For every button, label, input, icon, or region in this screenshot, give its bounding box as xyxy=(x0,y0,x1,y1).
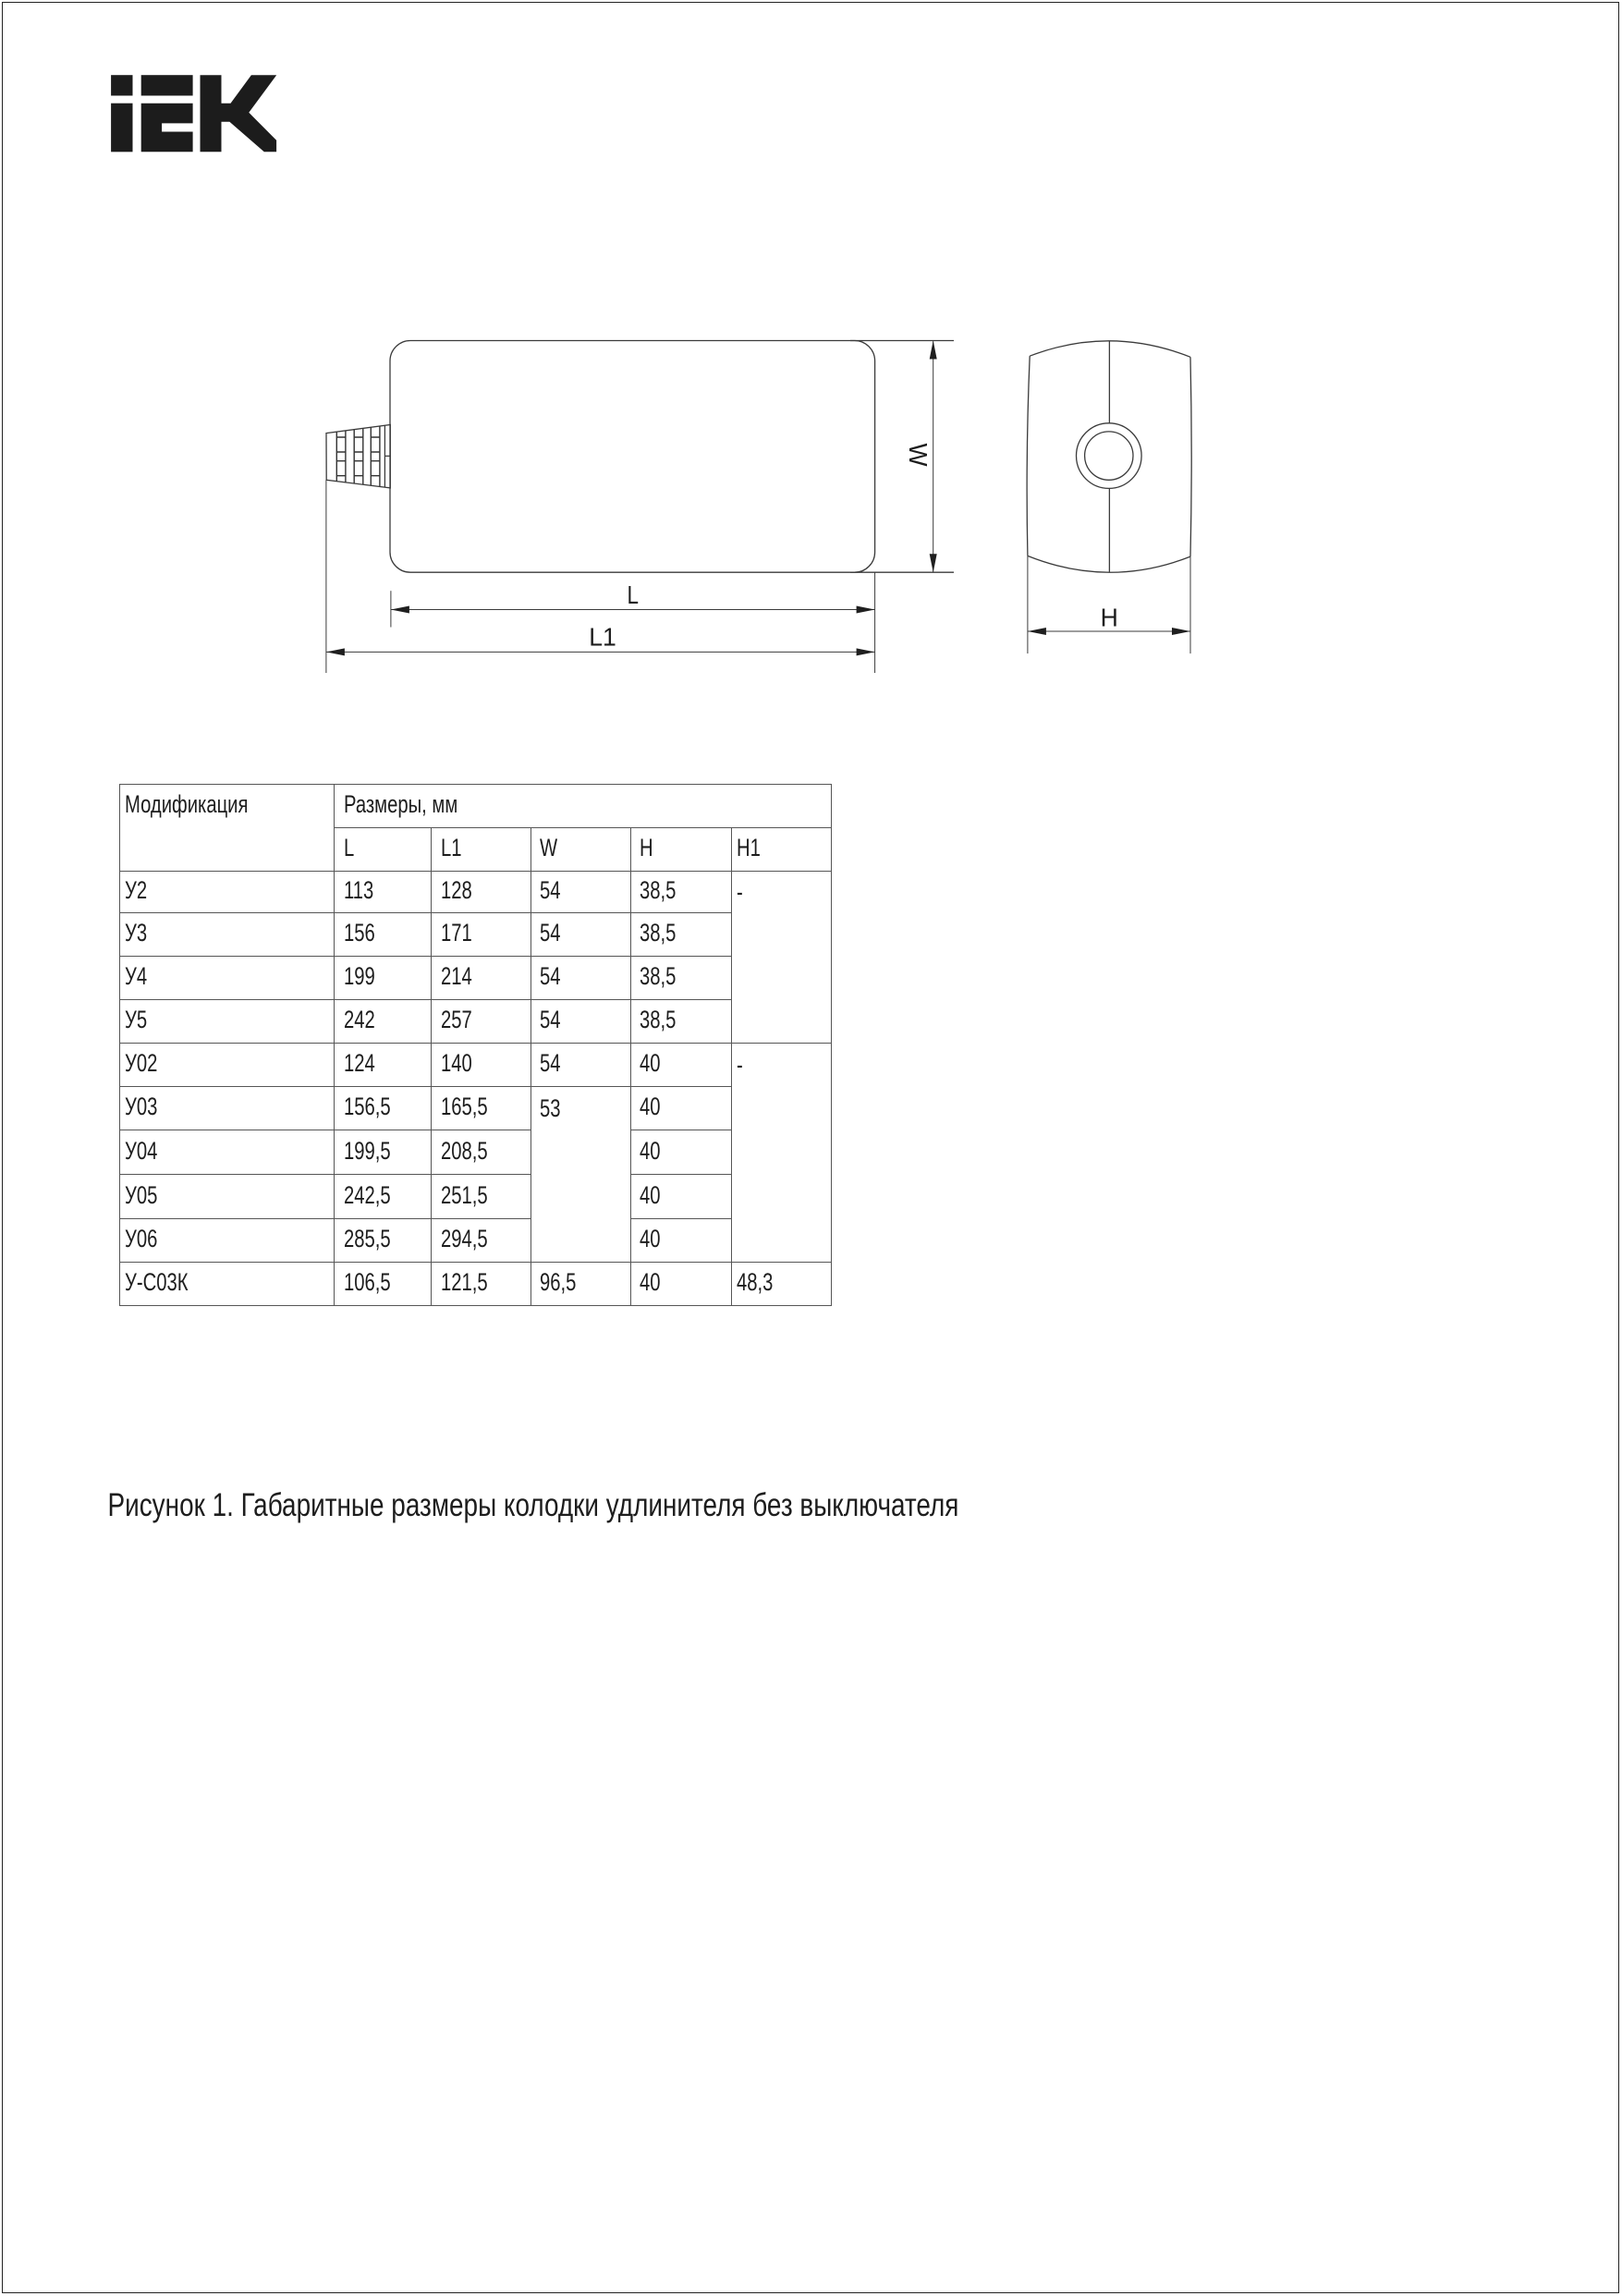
svg-text:H: H xyxy=(1101,603,1118,632)
svg-text:L1: L1 xyxy=(589,622,616,652)
svg-text:W: W xyxy=(904,443,933,466)
svg-text:L: L xyxy=(627,581,638,610)
svg-text:Рисунок 1. Габаритные размеры: Рисунок 1. Габаритные размеры колодки уд… xyxy=(108,1486,959,1523)
